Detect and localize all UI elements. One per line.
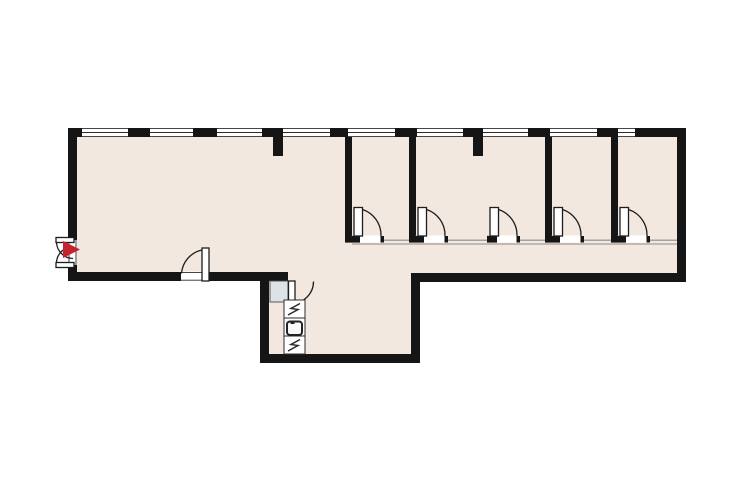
door-hinge-block bbox=[611, 236, 626, 243]
door-hinge-block bbox=[345, 236, 360, 243]
window-segment bbox=[150, 128, 193, 137]
wall-pier bbox=[395, 128, 417, 137]
room-door-leaf bbox=[620, 208, 629, 237]
entrance-door-leaf bbox=[56, 263, 74, 268]
door-stop bbox=[381, 236, 385, 243]
entrance-door-leaf bbox=[56, 238, 74, 243]
door-stop bbox=[517, 236, 521, 243]
window-segment bbox=[550, 128, 597, 137]
wall-bottom-left-b bbox=[207, 272, 288, 281]
service-shaft bbox=[270, 281, 288, 302]
wall-right bbox=[677, 128, 686, 282]
wall-pier bbox=[528, 128, 550, 137]
wall-pier bbox=[330, 128, 348, 137]
door-hinge-block bbox=[409, 236, 424, 243]
door-hinge-block bbox=[545, 236, 560, 243]
wall-pier bbox=[128, 128, 150, 137]
wall-pier bbox=[262, 128, 283, 137]
wall-pier bbox=[68, 128, 82, 137]
room-door-leaf bbox=[354, 208, 363, 237]
door-hinge-block bbox=[487, 236, 497, 243]
wall-stub bbox=[473, 137, 483, 156]
window-segment bbox=[618, 128, 635, 137]
room-door-leaf bbox=[554, 208, 563, 237]
sink-icon bbox=[287, 321, 302, 336]
window-segment bbox=[217, 128, 262, 137]
wall-kitchen-left bbox=[260, 272, 269, 363]
wall-bottom-right bbox=[411, 273, 686, 282]
exit-door-leaf bbox=[202, 248, 209, 281]
wall-stub bbox=[273, 137, 283, 156]
floor-plan-canvas bbox=[0, 0, 740, 493]
room-door-leaf bbox=[490, 208, 499, 237]
window-segment bbox=[483, 128, 528, 137]
door-stop bbox=[445, 236, 449, 243]
wall-left-upper bbox=[68, 128, 77, 240]
window-segment bbox=[82, 128, 128, 137]
partition bbox=[545, 137, 552, 242]
wall-pier bbox=[193, 128, 217, 137]
floor-plan-svg bbox=[0, 0, 740, 493]
wall-pier bbox=[597, 128, 618, 137]
window-segment bbox=[348, 128, 395, 137]
room-door-leaf bbox=[418, 208, 427, 237]
wall-kitchen-right bbox=[411, 273, 420, 363]
windows bbox=[82, 128, 635, 137]
wall-kitchen-bottom bbox=[260, 354, 420, 363]
wall-bottom-left-a bbox=[68, 272, 181, 281]
wall-pier bbox=[635, 128, 686, 137]
door-stop bbox=[581, 236, 585, 243]
wall-pier bbox=[463, 128, 483, 137]
door-stop bbox=[647, 236, 651, 243]
window-segment bbox=[417, 128, 463, 137]
partition bbox=[345, 137, 352, 242]
partition bbox=[409, 137, 416, 242]
window-segment bbox=[283, 128, 330, 137]
kitchen-unit bbox=[284, 300, 305, 354]
partition bbox=[611, 137, 618, 242]
